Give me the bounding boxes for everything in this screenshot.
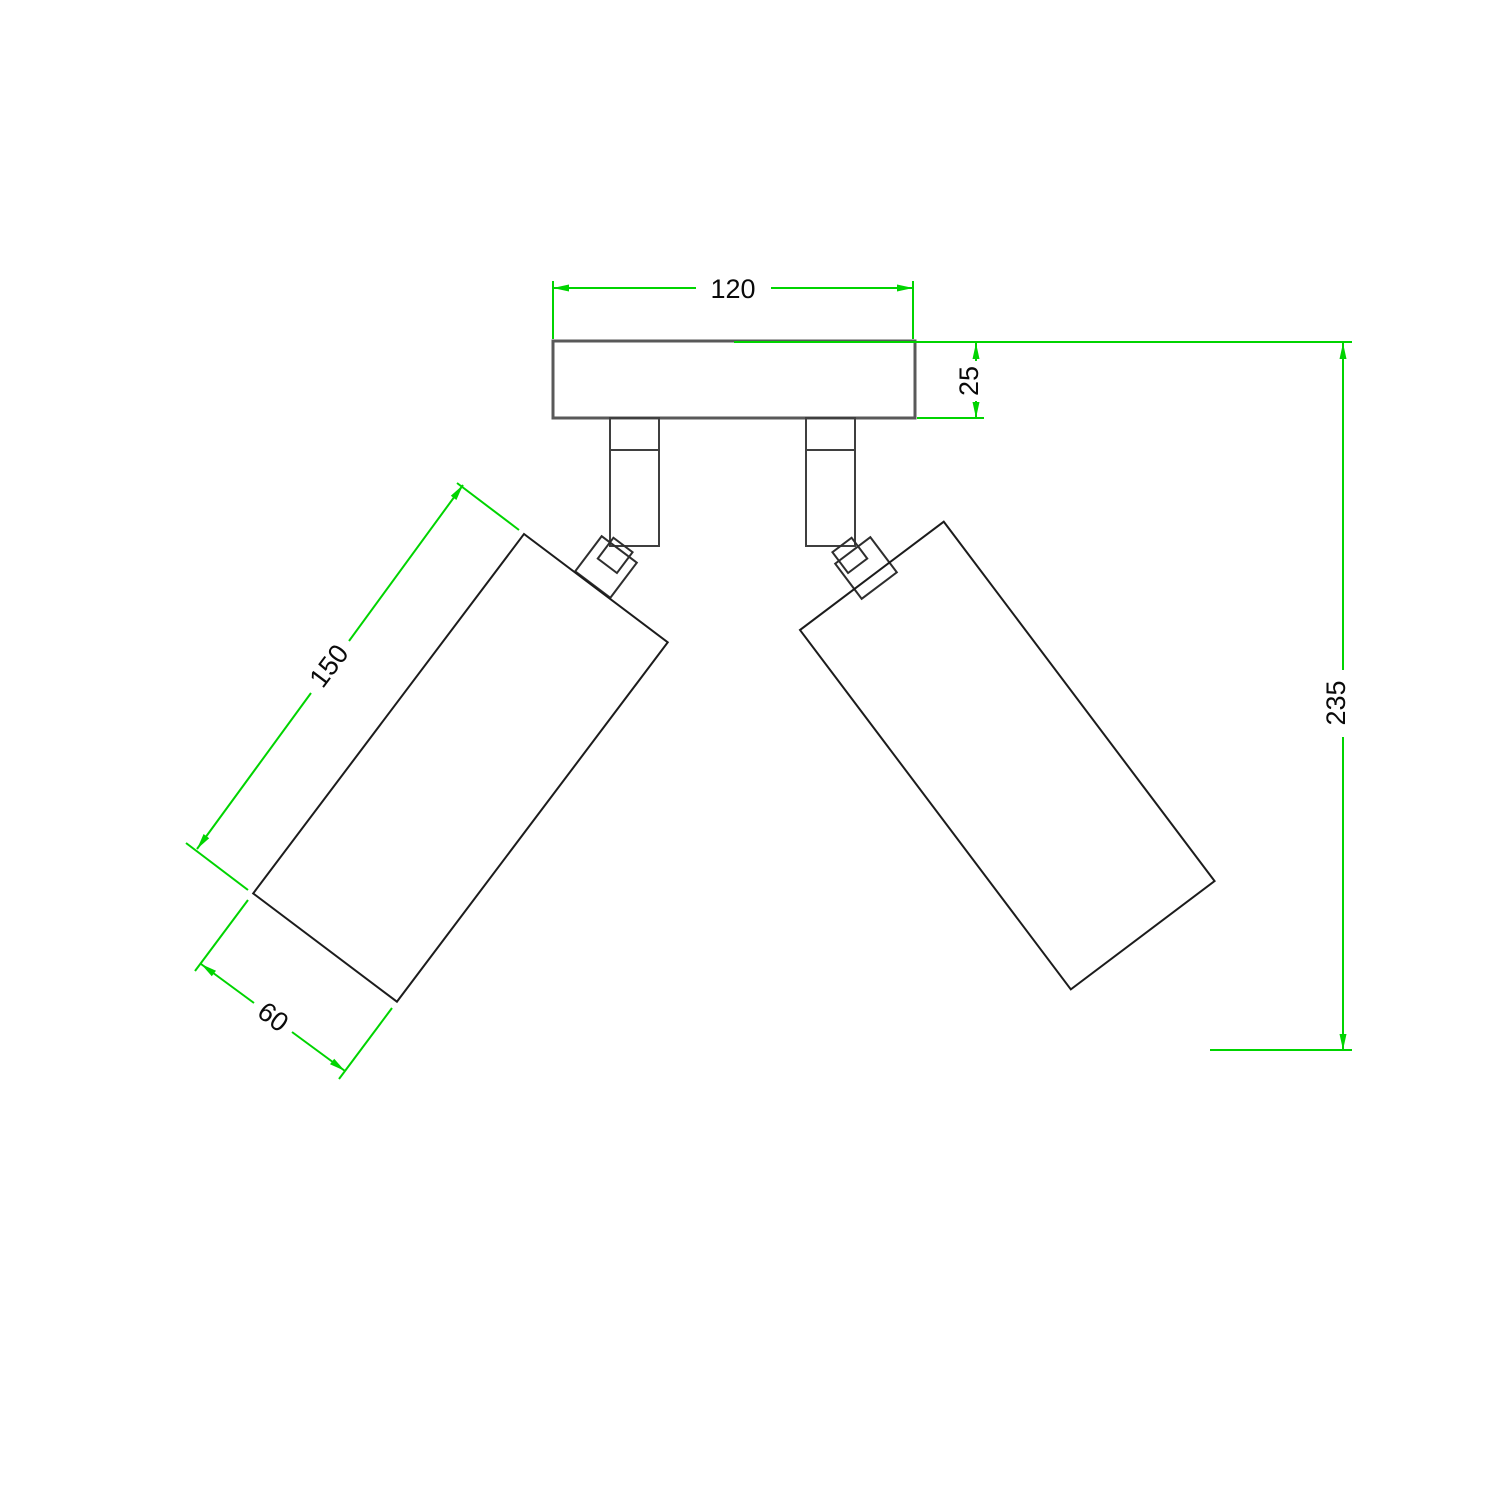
canvas-background [0, 0, 1500, 1500]
technical-drawing: 120 25 235 150 [0, 0, 1500, 1500]
dim-label-plate-thickness: 25 [954, 366, 984, 396]
dim-label-plate-width: 120 [710, 274, 755, 304]
dim-label-overall-depth: 235 [1321, 680, 1351, 725]
drawing-canvas: 120 25 235 150 [0, 0, 1500, 1500]
